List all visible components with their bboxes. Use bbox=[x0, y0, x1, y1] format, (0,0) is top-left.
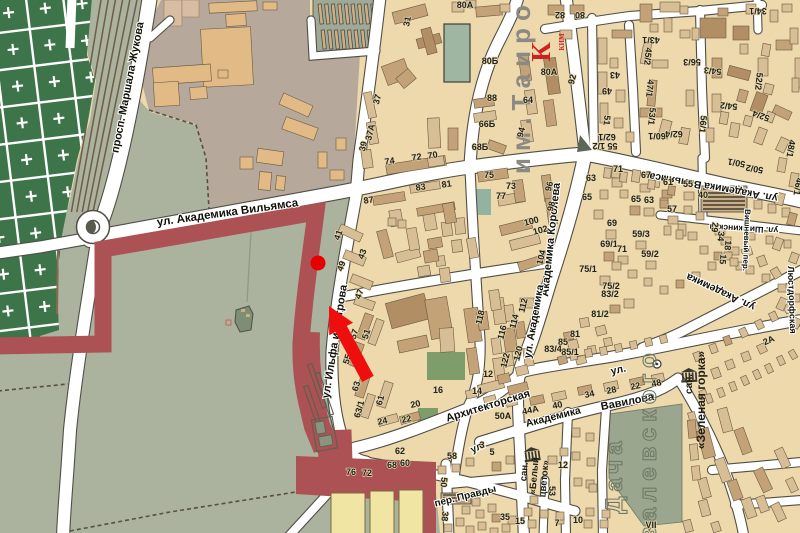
svg-text:55 1/2: 55 1/2 bbox=[592, 141, 617, 151]
svg-text:83/4: 83/4 bbox=[544, 344, 562, 354]
svg-text:80: 80 bbox=[575, 10, 585, 20]
svg-text:53: 53 bbox=[547, 486, 557, 496]
svg-text:83/2: 83/2 bbox=[601, 289, 619, 299]
svg-text:22: 22 bbox=[629, 380, 641, 392]
svg-text:71: 71 bbox=[613, 164, 623, 174]
svg-text:20: 20 bbox=[409, 398, 421, 410]
svg-text:48: 48 bbox=[650, 377, 662, 389]
svg-text:15: 15 bbox=[717, 254, 728, 265]
svg-text:12: 12 bbox=[558, 460, 568, 470]
svg-text:88: 88 bbox=[487, 93, 497, 103]
svg-text:56/1: 56/1 bbox=[697, 115, 709, 133]
svg-text:83: 83 bbox=[415, 181, 426, 192]
svg-text:КИМ: КИМ bbox=[558, 33, 566, 51]
svg-text:16: 16 bbox=[433, 385, 443, 395]
svg-text:68: 68 bbox=[387, 460, 397, 470]
svg-text:57: 57 bbox=[667, 204, 677, 214]
svg-text:3: 3 bbox=[479, 440, 484, 450]
svg-text:87: 87 bbox=[363, 194, 374, 205]
svg-text:51: 51 bbox=[601, 115, 612, 126]
svg-text:54/3: 54/3 bbox=[703, 65, 721, 77]
svg-text:49: 49 bbox=[602, 86, 612, 96]
svg-text:7: 7 bbox=[554, 518, 559, 528]
svg-text:«Зеленая горка»: «Зеленая горка» bbox=[694, 351, 708, 449]
svg-text:55: 55 bbox=[683, 179, 693, 189]
svg-text:74: 74 bbox=[384, 155, 395, 166]
svg-text:22: 22 bbox=[400, 413, 412, 425]
svg-text:62: 62 bbox=[395, 446, 405, 456]
svg-text:34/1: 34/1 bbox=[749, 6, 767, 16]
svg-text:59/2: 59/2 bbox=[641, 249, 659, 259]
svg-text:31: 31 bbox=[401, 15, 413, 27]
svg-text:70: 70 bbox=[427, 149, 438, 160]
svg-text:28: 28 bbox=[605, 384, 617, 396]
svg-text:52/2: 52/2 bbox=[753, 72, 765, 90]
svg-text:75/1: 75/1 bbox=[579, 264, 597, 274]
svg-text:им.Таирова: им.Таирова bbox=[506, 0, 536, 174]
svg-text:71: 71 bbox=[617, 244, 627, 254]
svg-text:58: 58 bbox=[447, 451, 457, 461]
svg-text:40: 40 bbox=[698, 190, 708, 200]
svg-text:80А: 80А bbox=[457, 0, 474, 10]
svg-text:65: 65 bbox=[631, 194, 641, 204]
svg-text:63: 63 bbox=[644, 195, 654, 205]
svg-text:53/1: 53/1 bbox=[646, 107, 658, 125]
svg-text:35: 35 bbox=[500, 512, 510, 522]
svg-text:81: 81 bbox=[441, 178, 452, 189]
svg-text:40: 40 bbox=[551, 399, 563, 411]
svg-text:62/1: 62/1 bbox=[598, 132, 616, 142]
svg-text:81/2: 81/2 bbox=[591, 309, 609, 319]
svg-text:77: 77 bbox=[496, 191, 506, 201]
svg-text:12: 12 bbox=[483, 369, 493, 379]
svg-text:43: 43 bbox=[610, 70, 620, 80]
svg-text:82: 82 bbox=[555, 10, 565, 20]
svg-text:10: 10 bbox=[573, 515, 583, 525]
svg-text:43/1: 43/1 bbox=[642, 35, 660, 45]
svg-text:85/1: 85/1 bbox=[561, 347, 579, 357]
svg-text:80А: 80А bbox=[541, 67, 558, 77]
svg-text:14: 14 bbox=[472, 386, 482, 396]
svg-text:38: 38 bbox=[439, 511, 450, 522]
svg-text:68Б: 68Б bbox=[472, 142, 489, 152]
svg-text:59/3: 59/3 bbox=[632, 229, 650, 239]
svg-text:80Б: 80Б bbox=[482, 56, 499, 66]
svg-text:К: К bbox=[526, 42, 556, 62]
svg-text:34: 34 bbox=[583, 388, 595, 400]
svg-text:76: 76 bbox=[346, 467, 356, 477]
svg-text:63: 63 bbox=[586, 173, 596, 183]
svg-text:67: 67 bbox=[641, 170, 651, 180]
svg-text:72: 72 bbox=[362, 468, 372, 478]
svg-text:81: 81 bbox=[570, 329, 580, 339]
svg-text:60: 60 bbox=[400, 458, 410, 468]
svg-text:61: 61 bbox=[663, 177, 673, 187]
svg-text:73: 73 bbox=[506, 181, 516, 191]
svg-text:47/1: 47/1 bbox=[644, 79, 656, 97]
svg-text:5: 5 bbox=[489, 447, 494, 457]
svg-text:18: 18 bbox=[722, 240, 733, 251]
svg-text:69/1: 69/1 bbox=[600, 239, 618, 249]
svg-text:69: 69 bbox=[607, 218, 617, 228]
svg-text:72: 72 bbox=[411, 151, 422, 162]
svg-text:45/2: 45/2 bbox=[642, 47, 654, 65]
svg-text:Ковалевского: Ковалевского bbox=[635, 347, 662, 533]
svg-text:15: 15 bbox=[515, 516, 525, 526]
svg-text:62/4: 62/4 bbox=[665, 129, 683, 139]
svg-text:50А: 50А bbox=[495, 411, 512, 421]
svg-text:60/1: 60/1 bbox=[648, 131, 666, 141]
svg-text:54/2: 54/2 bbox=[719, 100, 737, 112]
svg-text:65: 65 bbox=[582, 192, 592, 202]
svg-text:64: 64 bbox=[523, 95, 533, 105]
svg-text:75: 75 bbox=[484, 170, 494, 180]
svg-text:50: 50 bbox=[438, 477, 449, 488]
svg-text:66Б: 66Б bbox=[479, 119, 496, 129]
svg-text:VII: VII bbox=[645, 520, 656, 530]
svg-text:56/3: 56/3 bbox=[683, 57, 701, 67]
svg-text:Дача: Дача bbox=[601, 436, 628, 513]
svg-text:24: 24 bbox=[376, 415, 388, 427]
